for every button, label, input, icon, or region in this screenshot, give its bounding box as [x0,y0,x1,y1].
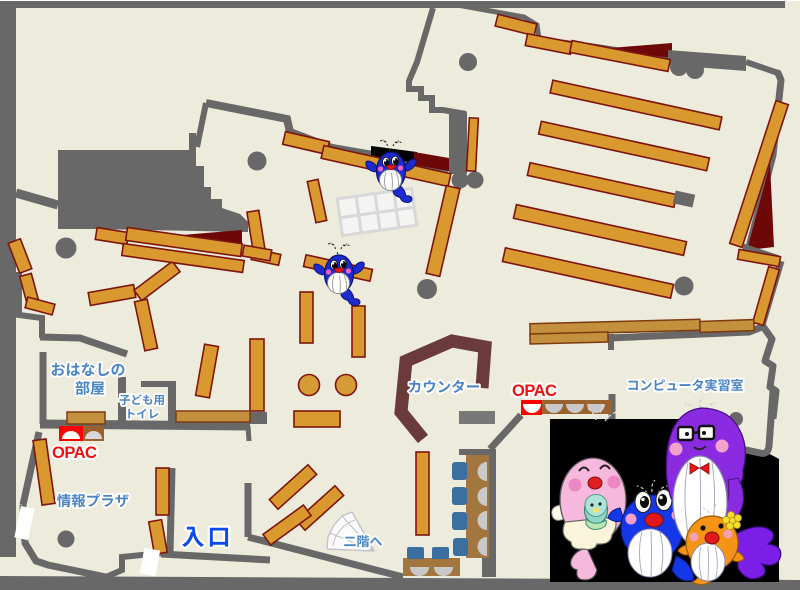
svg-text:OPAC: OPAC [52,444,97,462]
svg-text:OPAC: OPAC [512,382,557,400]
